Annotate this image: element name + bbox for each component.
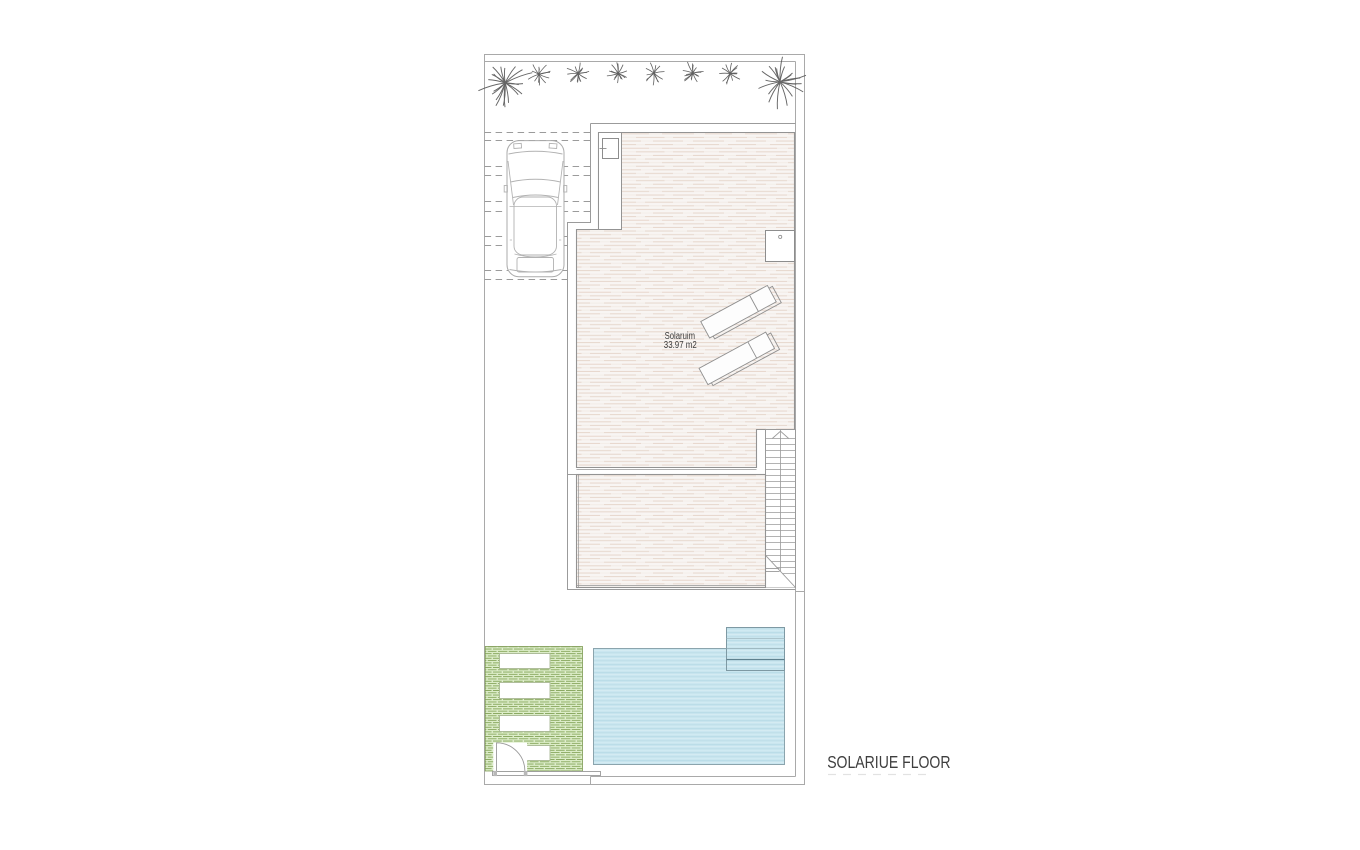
svg-text:SOLARIUE FLOOR: SOLARIUE FLOOR bbox=[827, 752, 950, 772]
svg-text:33.97 m2: 33.97 m2 bbox=[664, 340, 697, 351]
